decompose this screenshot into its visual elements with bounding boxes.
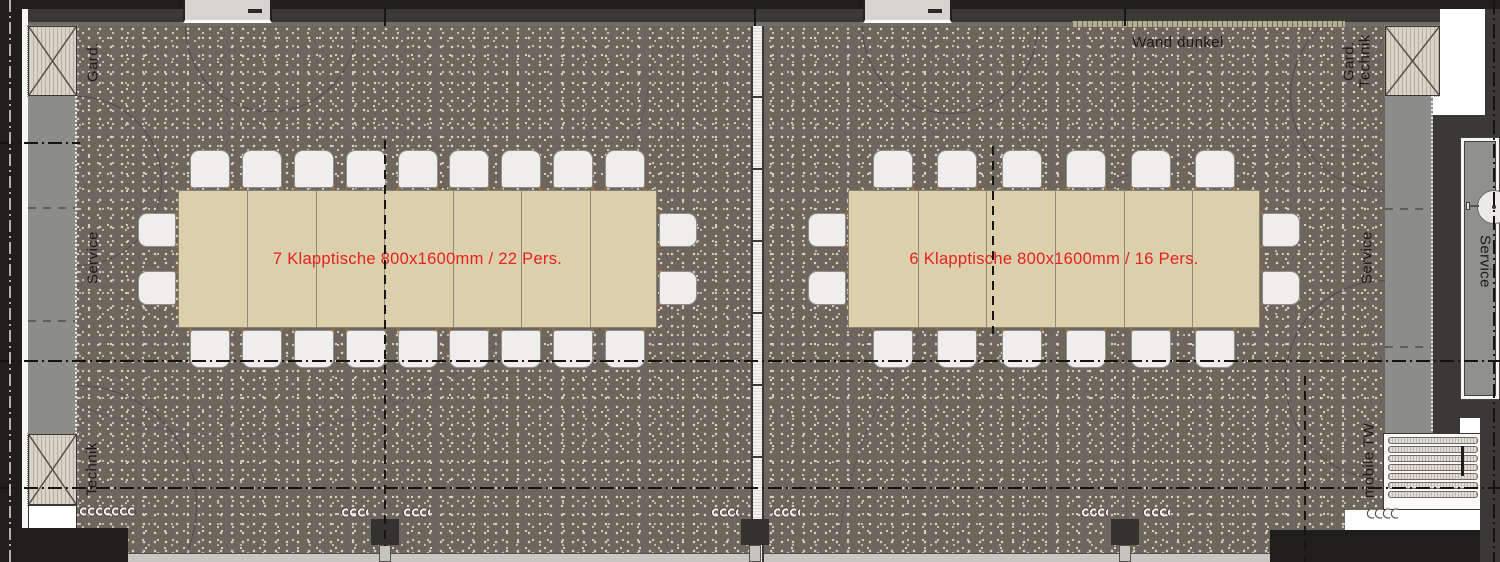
heater-coil [772,506,800,519]
technik-label-left: Technik [77,432,107,506]
chair [346,150,386,188]
stacked-partition-elements [1383,433,1483,510]
chair [501,150,541,188]
partition-setting-line [992,146,994,334]
axis-tick [754,9,756,26]
chair [1195,330,1235,368]
mobile-tw-label: mobile TW [1354,412,1384,508]
gard-shaft-hatch [28,26,77,96]
chair [659,213,697,247]
chair [808,213,846,247]
chair [937,150,977,188]
chair [1002,150,1042,188]
chair [449,330,489,368]
column-stem [1119,545,1131,562]
technik-shaft-hatch [28,434,77,505]
chair [294,330,334,368]
chair [1131,150,1171,188]
chair [1066,150,1106,188]
chair [190,330,230,368]
mobile-partition-track [751,26,764,562]
chair [553,330,593,368]
chair [1262,213,1300,247]
partition-slat [1388,455,1478,462]
grid-axis-stub [0,142,80,144]
column [741,519,769,545]
chair [242,330,282,368]
door-recess-right [863,0,952,23]
service-corridor-right [1385,96,1433,435]
partition-slat [1388,464,1478,471]
technik-label-right: Technik [1352,23,1378,99]
room-right-capacity-label: 6 Klapptische 800x1600mm / 16 Pers. [849,191,1259,327]
chair [605,330,645,368]
heater-coil [1142,506,1170,519]
grid-axis-horizontal [0,487,1500,489]
chair [659,271,697,305]
chair [808,271,846,305]
axis-tick [1124,9,1126,26]
chair [190,150,230,188]
partition-setting-line [1304,376,1306,562]
chair [1066,330,1106,368]
dark-wall-finish-band [1072,21,1345,27]
partition-slat [1388,446,1478,453]
partition-setting-line [384,140,386,546]
chair [398,330,438,368]
column [1111,519,1139,545]
wand-dunkel-label: Wand dunkel [1108,32,1248,52]
basin-fitting [1469,205,1479,207]
left-door-niche [28,505,77,529]
chair [937,330,977,368]
chair [1195,150,1235,188]
right-void [1440,9,1485,115]
column-stem [749,545,761,562]
room-left-capacity-label: 7 Klapptische 800x1600mm / 22 Pers. [179,191,656,327]
service-label-left: Service [78,223,108,293]
chair [873,330,913,368]
chair [294,150,334,188]
chair [138,271,176,305]
heater-coil [710,506,738,519]
column-stem [379,545,391,562]
heater-coil [340,506,368,519]
service-corridor-left [28,96,77,434]
chair [1002,330,1042,368]
chair [398,150,438,188]
room-left-table-group: 7 Klapptische 800x1600mm / 22 Pers. [178,190,657,328]
floor-plan: Wand dunkel Gard. Service Technik Gard. … [0,0,1500,562]
left-outer-wall [0,0,22,562]
chair [1131,330,1171,368]
chair [605,150,645,188]
partition-slat [1388,437,1478,444]
heater-coil [1366,507,1399,520]
partition-slat [1388,473,1478,480]
chair [1262,271,1300,305]
heater-coil [78,505,136,518]
bottom-left-wall [0,528,128,562]
chair [138,213,176,247]
grid-axis-vertical-left [9,0,11,562]
partition-slat [1388,491,1478,498]
right-inner-wall [1433,115,1460,435]
gard-technik-shaft-hatch-right [1385,26,1440,96]
heater-coil [402,506,430,519]
chair [553,150,593,188]
stack-stop-bar [1461,446,1464,476]
chair [873,150,913,188]
chair [501,330,541,368]
chair [242,150,282,188]
right-wall-spur [1433,115,1500,137]
axis-tick [384,9,386,26]
chair [449,150,489,188]
service-label-room: Service [1472,225,1498,297]
chair [346,330,386,368]
door-swing-arc [862,26,1038,114]
door-recess-left [183,0,272,23]
room-right-table-group: 6 Klapptische 800x1600mm / 16 Pers. [848,190,1260,328]
grid-axis-horizontal [0,360,1500,362]
basin-handle [1466,202,1470,210]
gard-label-left: Gard. [78,27,108,97]
heater-coil [1080,506,1108,519]
service-label-corridor: Service [1352,223,1382,293]
